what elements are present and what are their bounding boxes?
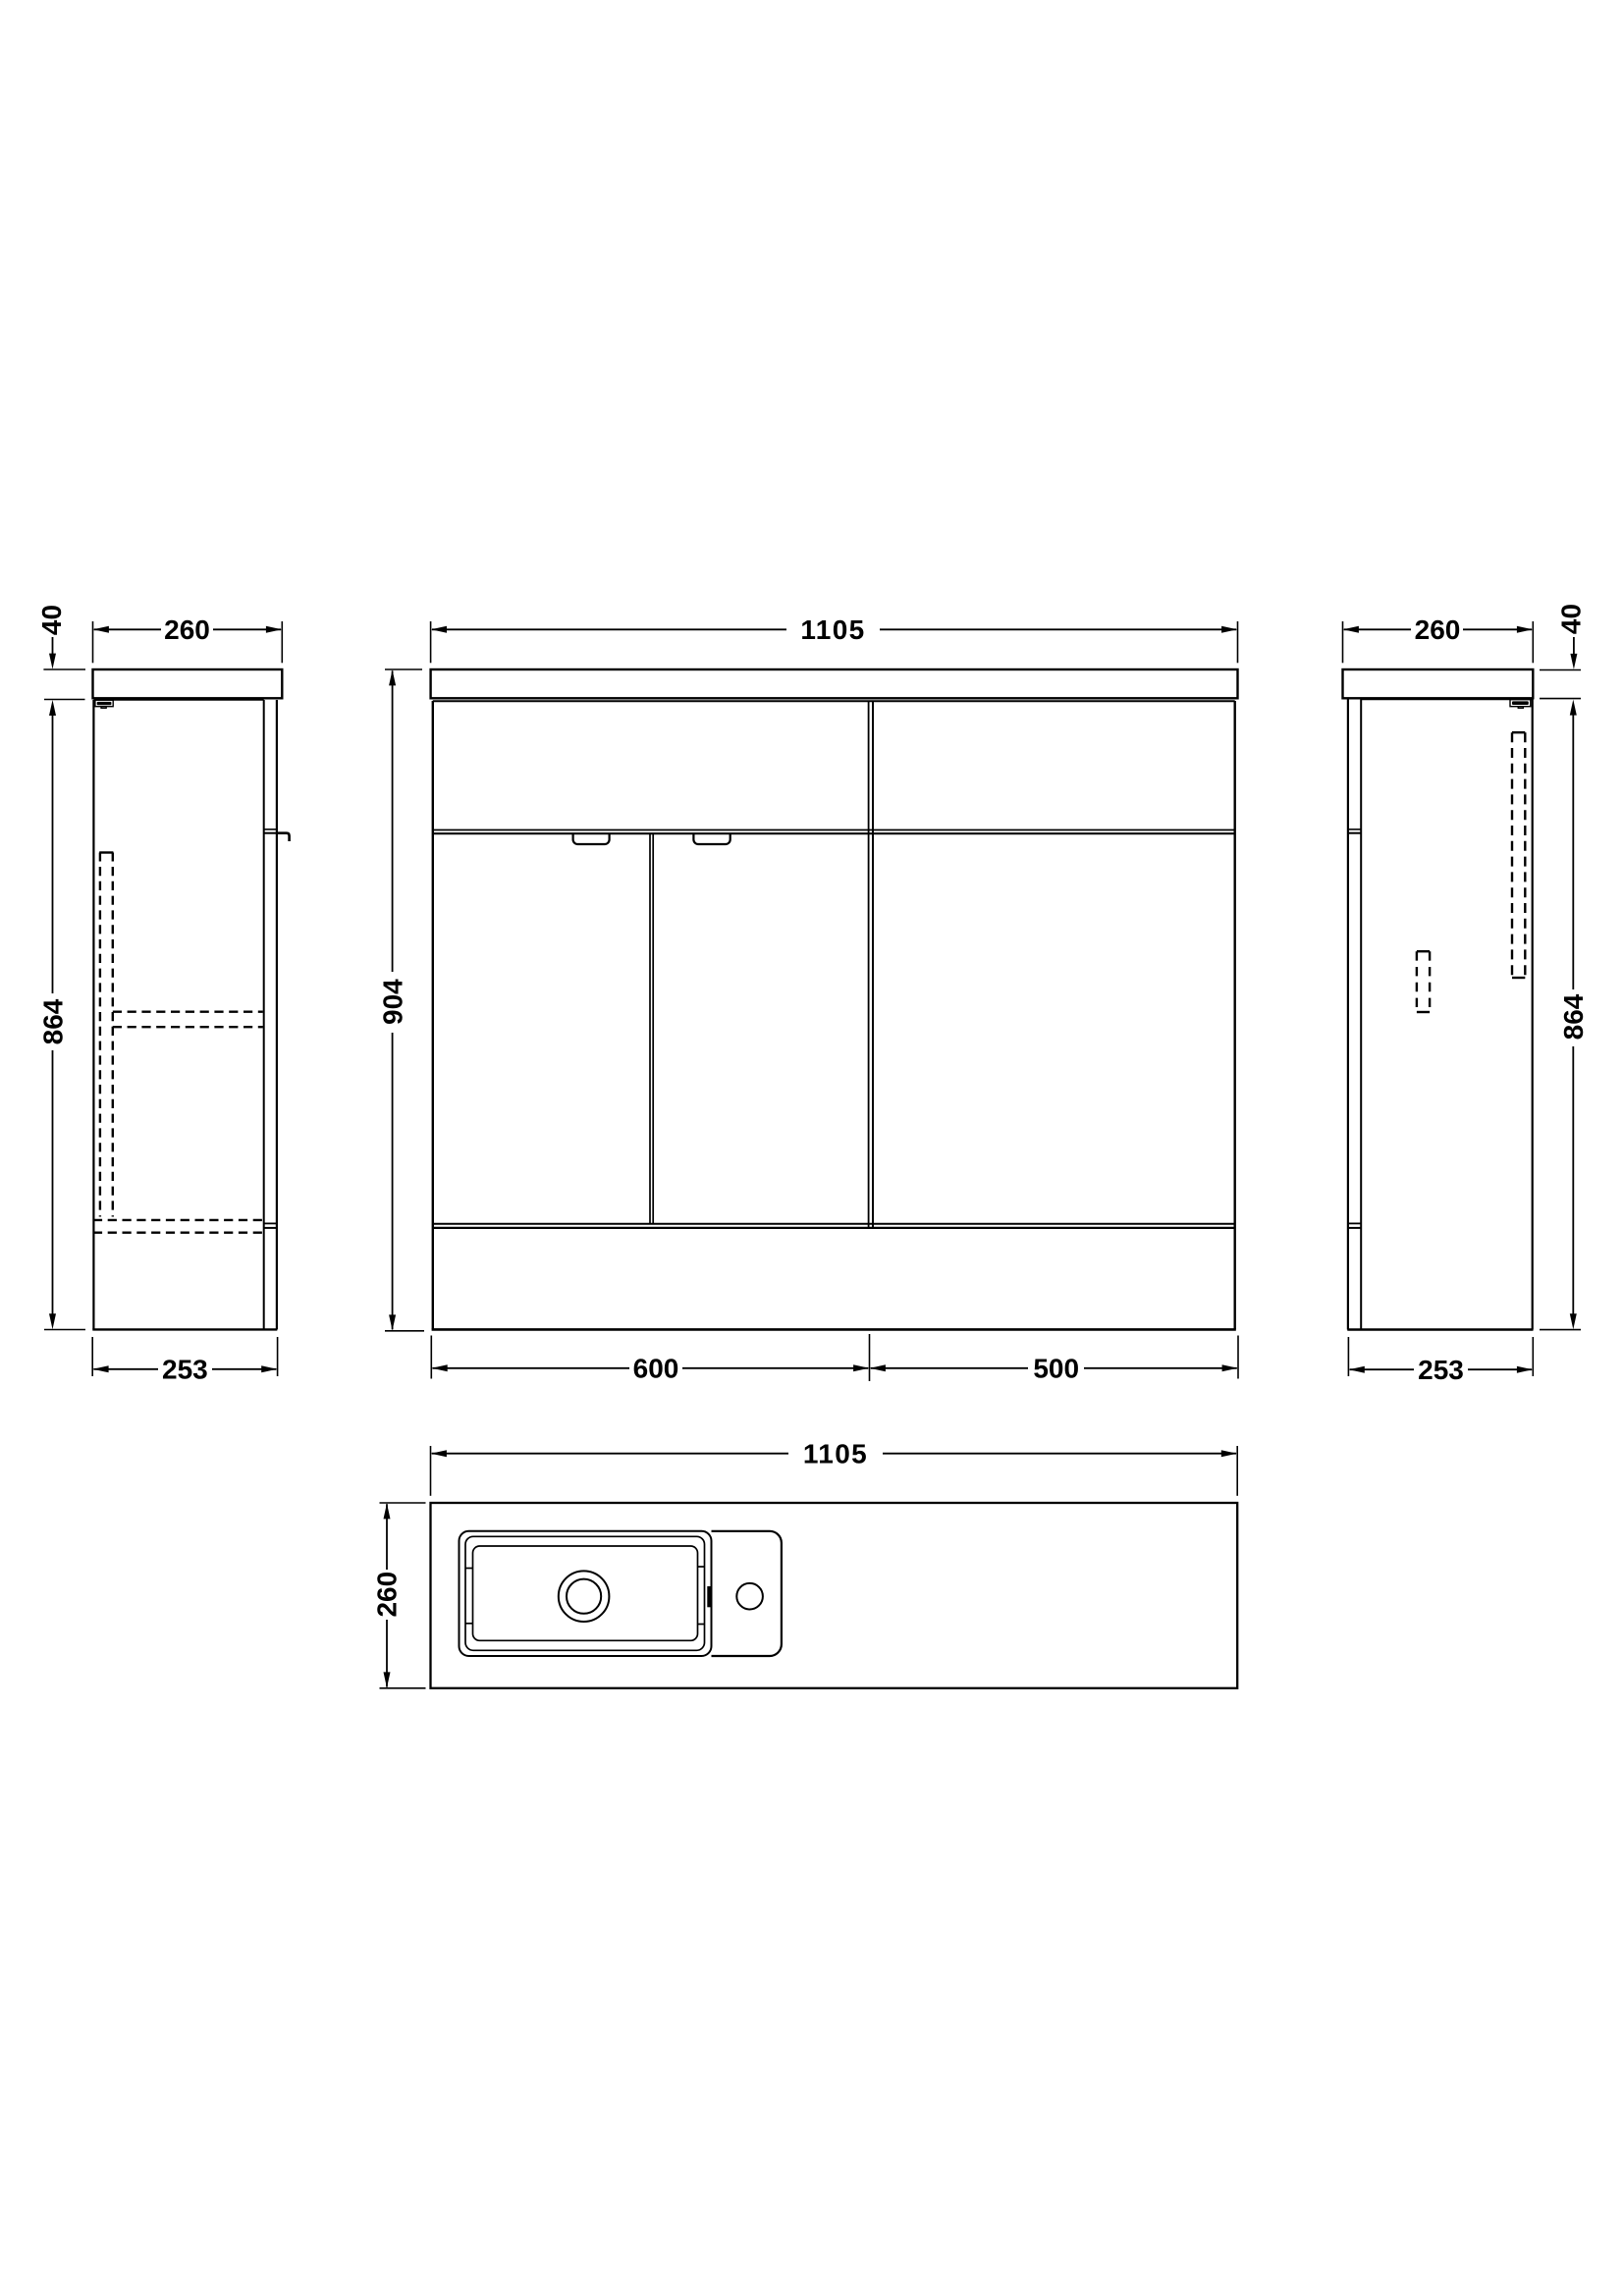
svg-text:1105: 1105 — [800, 614, 865, 645]
svg-text:600: 600 — [633, 1354, 679, 1384]
svg-text:904: 904 — [378, 979, 408, 1025]
svg-text:260: 260 — [371, 1572, 402, 1618]
svg-text:500: 500 — [1033, 1354, 1079, 1384]
svg-text:260: 260 — [164, 614, 210, 645]
svg-text:253: 253 — [1418, 1355, 1464, 1385]
svg-text:260: 260 — [1415, 614, 1461, 645]
svg-text:40: 40 — [36, 605, 67, 635]
svg-text:1105: 1105 — [803, 1439, 868, 1469]
svg-text:253: 253 — [162, 1355, 208, 1385]
svg-text:40: 40 — [1556, 604, 1587, 634]
svg-text:864: 864 — [37, 998, 68, 1044]
svg-text:864: 864 — [1558, 993, 1589, 1040]
